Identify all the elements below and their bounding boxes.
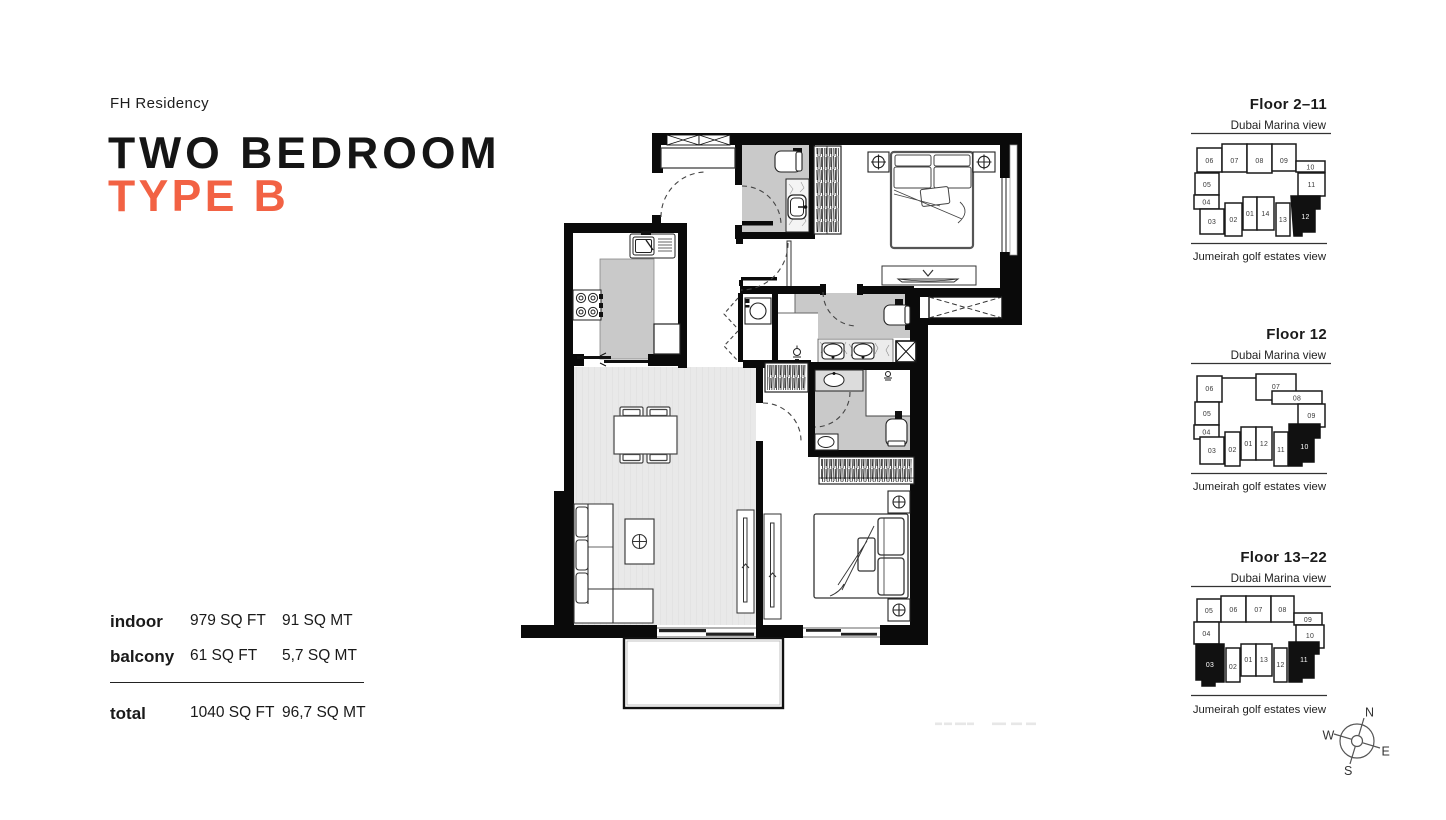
svg-text:Floor 13–22: Floor 13–22 <box>1240 549 1327 566</box>
svg-text:06: 06 <box>1205 386 1213 393</box>
svg-text:Jumeirah golf estates view: Jumeirah golf estates view <box>1193 481 1327 493</box>
svg-text:Dubai Marina view: Dubai Marina view <box>1231 572 1327 585</box>
svg-text:12: 12 <box>1260 441 1268 448</box>
svg-text:Floor 12: Floor 12 <box>1266 326 1327 343</box>
svg-text:10: 10 <box>1300 444 1308 451</box>
svg-text:02: 02 <box>1228 447 1236 454</box>
svg-text:14: 14 <box>1261 211 1269 218</box>
svg-text:04: 04 <box>1202 631 1210 638</box>
svg-text:12: 12 <box>1301 214 1309 221</box>
svg-text:11: 11 <box>1308 182 1316 189</box>
svg-text:Dubai Marina view: Dubai Marina view <box>1231 349 1327 362</box>
svg-text:08: 08 <box>1278 607 1286 614</box>
svg-text:03: 03 <box>1208 448 1216 455</box>
svg-text:Floor 2–11: Floor 2–11 <box>1250 96 1327 113</box>
svg-text:01: 01 <box>1244 441 1252 448</box>
svg-text:Dubai Marina view: Dubai Marina view <box>1231 119 1327 132</box>
svg-text:05: 05 <box>1205 608 1213 615</box>
svg-text:03: 03 <box>1206 662 1214 669</box>
svg-text:07: 07 <box>1272 384 1280 391</box>
svg-text:12: 12 <box>1276 662 1284 669</box>
svg-text:11: 11 <box>1300 657 1308 664</box>
svg-text:09: 09 <box>1280 158 1288 165</box>
svg-text:13: 13 <box>1279 217 1287 224</box>
svg-text:E: E <box>1382 745 1390 759</box>
svg-text:11: 11 <box>1277 447 1285 454</box>
svg-text:06: 06 <box>1205 158 1213 165</box>
svg-text:01: 01 <box>1246 211 1254 218</box>
svg-text:04: 04 <box>1202 200 1210 207</box>
svg-text:07: 07 <box>1254 607 1262 614</box>
svg-text:02: 02 <box>1229 664 1237 671</box>
svg-text:08: 08 <box>1293 396 1301 403</box>
svg-text:05: 05 <box>1203 182 1211 189</box>
svg-text:10: 10 <box>1306 165 1314 172</box>
svg-text:13: 13 <box>1260 657 1268 664</box>
svg-text:08: 08 <box>1255 158 1263 165</box>
svg-text:S: S <box>1344 764 1352 778</box>
svg-text:N: N <box>1365 706 1374 720</box>
svg-text:W: W <box>1323 729 1335 743</box>
svg-text:Jumeirah golf estates view: Jumeirah golf estates view <box>1193 704 1327 716</box>
svg-text:03: 03 <box>1208 219 1216 226</box>
svg-text:Jumeirah golf estates view: Jumeirah golf estates view <box>1193 251 1327 263</box>
svg-text:07: 07 <box>1230 158 1238 165</box>
svg-text:10: 10 <box>1306 633 1314 640</box>
svg-text:04: 04 <box>1202 430 1210 437</box>
svg-text:06: 06 <box>1229 607 1237 614</box>
svg-text:01: 01 <box>1244 657 1252 664</box>
svg-text:02: 02 <box>1229 217 1237 224</box>
svg-text:05: 05 <box>1203 411 1211 418</box>
svg-text:09: 09 <box>1307 413 1315 420</box>
svg-text:09: 09 <box>1304 617 1312 624</box>
